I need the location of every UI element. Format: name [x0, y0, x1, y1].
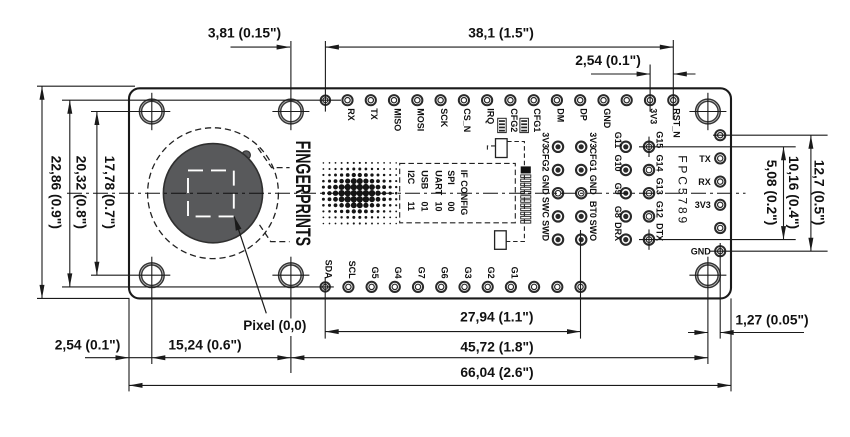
svg-text:DM: DM — [555, 108, 565, 122]
svg-text:SWC: SWC — [541, 197, 551, 218]
svg-text:2,54 (0.1"): 2,54 (0.1") — [575, 53, 641, 68]
svg-text:3,81 (0.15"): 3,81 (0.15") — [208, 26, 281, 41]
svg-text:SPI: SPI — [446, 170, 456, 185]
svg-text:MOSI: MOSI — [416, 108, 426, 131]
svg-text:27,94 (1.1"): 27,94 (1.1") — [460, 309, 533, 324]
svg-text:G8: G8 — [613, 206, 623, 218]
svg-text:22,86 (0.9"): 22,86 (0.9") — [49, 156, 64, 229]
svg-text:SCK: SCK — [439, 108, 449, 128]
svg-text:G7: G7 — [416, 267, 426, 279]
svg-text:FPC5789: FPC5789 — [676, 155, 690, 223]
svg-text:G11: G11 — [613, 132, 623, 149]
svg-text:SCL: SCL — [347, 261, 357, 280]
svg-text:17,78 (0.7"): 17,78 (0.7") — [102, 156, 117, 229]
svg-text:G4: G4 — [393, 267, 403, 279]
svg-text:01: 01 — [420, 202, 430, 212]
svg-text:66,04 (2.6"): 66,04 (2.6") — [460, 365, 533, 380]
svg-text:1,27 (0.05"): 1,27 (0.05") — [735, 313, 808, 328]
svg-text:CFG1: CFG1 — [588, 147, 598, 171]
svg-text:TX: TX — [369, 108, 379, 120]
svg-text:G12: G12 — [655, 201, 665, 218]
svg-text:GND: GND — [541, 175, 551, 196]
svg-text:MISO: MISO — [392, 108, 402, 131]
svg-text:3V3: 3V3 — [541, 132, 551, 148]
svg-text:BT0: BT0 — [588, 201, 598, 218]
svg-text:5,08 (0.2"): 5,08 (0.2") — [764, 160, 779, 226]
svg-text:SWO: SWO — [588, 220, 598, 242]
svg-text:USB: USB — [420, 170, 430, 190]
svg-text:DRX: DRX — [613, 222, 623, 241]
svg-text:12,7 (0.5"): 12,7 (0.5") — [811, 160, 826, 226]
svg-text:G13: G13 — [655, 178, 665, 195]
svg-text:SWD: SWD — [541, 220, 551, 241]
svg-text:G5: G5 — [370, 267, 380, 279]
svg-text:I2C: I2C — [406, 170, 416, 185]
svg-text:3V3: 3V3 — [695, 200, 711, 210]
svg-text:DTX: DTX — [655, 223, 665, 241]
svg-text:RX: RX — [346, 108, 356, 121]
svg-text:G14: G14 — [655, 154, 665, 171]
svg-text:00: 00 — [446, 202, 456, 212]
svg-text:2,54 (0.1"): 2,54 (0.1") — [55, 338, 121, 353]
svg-text:IRQ: IRQ — [486, 108, 496, 124]
svg-text:GND: GND — [588, 175, 598, 196]
svg-text:DP: DP — [579, 108, 589, 121]
svg-text:SDA: SDA — [324, 260, 334, 280]
svg-text:G3: G3 — [463, 267, 473, 279]
svg-text:10: 10 — [434, 202, 444, 212]
svg-text:CFG2: CFG2 — [541, 147, 551, 171]
svg-text:TX: TX — [699, 154, 711, 164]
svg-text:38,1 (1.5"): 38,1 (1.5") — [468, 26, 534, 41]
svg-text:RX: RX — [698, 177, 711, 187]
svg-text:Pixel (0,0): Pixel (0,0) — [243, 318, 306, 333]
svg-text:15,24 (0.6"): 15,24 (0.6") — [168, 338, 241, 353]
svg-text:IF CONFIG: IF CONFIG — [459, 170, 469, 216]
svg-text:CFG1: CFG1 — [532, 108, 542, 132]
svg-text:G6: G6 — [440, 267, 450, 279]
svg-text:CFG2: CFG2 — [509, 108, 519, 132]
svg-text:G1: G1 — [509, 267, 519, 279]
svg-text:GND: GND — [691, 247, 712, 257]
svg-text:45,72 (1.8"): 45,72 (1.8") — [460, 340, 533, 355]
svg-text:CS_N: CS_N — [462, 108, 472, 132]
svg-text:G2: G2 — [486, 267, 496, 279]
svg-text:11: 11 — [406, 202, 416, 212]
svg-text:3V3: 3V3 — [588, 132, 598, 148]
svg-text:20,32 (0.8"): 20,32 (0.8") — [73, 156, 88, 229]
svg-text:10,16 (0.4"): 10,16 (0.4") — [786, 156, 801, 229]
svg-text:G15: G15 — [655, 131, 665, 148]
svg-text:G10: G10 — [613, 154, 623, 171]
svg-text:UART: UART — [434, 170, 444, 195]
svg-text:GND: GND — [602, 108, 612, 129]
